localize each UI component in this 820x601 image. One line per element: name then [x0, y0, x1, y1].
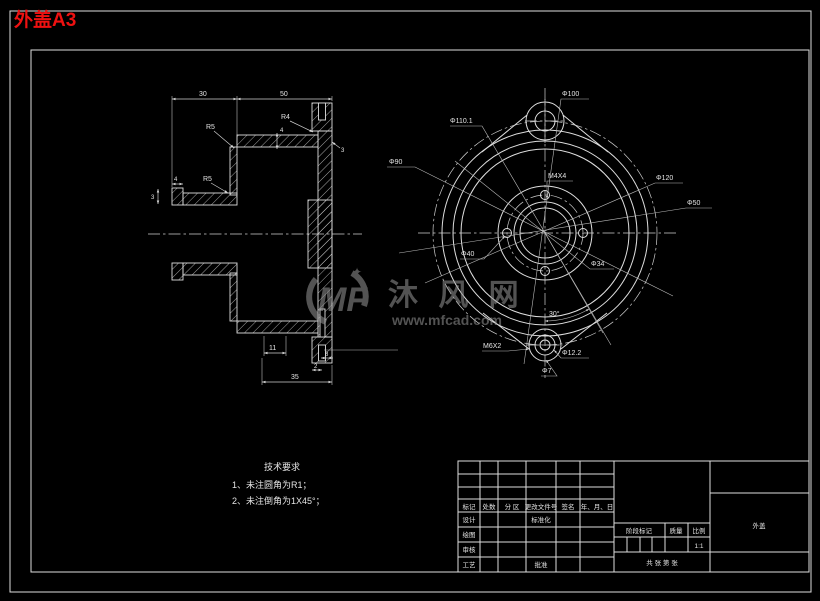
tb-scale-value: 1:1: [694, 543, 703, 550]
tb-col-date: 年、月、日: [581, 502, 614, 511]
dim-11: 11: [269, 345, 276, 352]
cad-sheet: 外盖A3 30: [0, 0, 820, 601]
label-a30: 30°: [549, 310, 560, 318]
watermark-url: www.mfcad.com: [391, 312, 502, 328]
label-d40: Φ40: [461, 251, 474, 258]
label-d7: Φ7: [542, 368, 552, 375]
dim-3b: 3: [341, 148, 345, 154]
label-d110: Φ110.1: [450, 118, 473, 125]
label-d122: Φ12.2: [562, 350, 581, 357]
tb-row-design: 设计: [463, 515, 477, 524]
tb-row-draw: 绘图: [463, 530, 476, 539]
tb-col-mark: 标记: [463, 502, 477, 511]
tb-stage-mark: 阶段标记: [626, 526, 653, 535]
dim-r5a: R5: [206, 124, 215, 131]
label-d50: Φ50: [687, 200, 700, 207]
watermark-sparkle-icon: ✦: [352, 265, 362, 279]
tech-req-item-2: 2、未注倒角为1X45°；: [232, 495, 325, 506]
label-m4: M4X4: [548, 173, 566, 180]
tech-req-item-1: 1、未注圆角为R1；: [232, 479, 312, 490]
front-view-labels: Φ90 Φ110.1 Φ100 Φ120 Φ50 Φ34 Φ40 M4X4 30…: [387, 91, 712, 376]
section-view: 30 50 R4 R5 R5 4 3 4 3 11 35 8: [148, 91, 398, 385]
watermark-brand: 沐 风 网: [388, 279, 525, 312]
dim-30: 30: [199, 91, 207, 98]
dim-r5b: R5: [203, 176, 212, 183]
dim-35: 35: [291, 374, 299, 381]
tb-mass: 质量: [670, 526, 684, 535]
watermark-logo: MF: [318, 281, 368, 319]
label-m6: M6X2: [483, 343, 501, 350]
label-d34: Φ34: [591, 261, 604, 268]
dim-2: 2: [314, 364, 318, 370]
dim-50: 50: [280, 91, 288, 98]
tb-part-name: 外盖: [753, 521, 767, 530]
tech-req-title: 技术要求: [264, 461, 300, 472]
tech-requirements: 技术要求 1、未注圆角为R1； 2、未注倒角为1X45°；: [232, 461, 325, 506]
label-d120: Φ120: [656, 175, 673, 182]
tb-row-check: 审核: [463, 545, 477, 554]
title-block: 标记 处数 分 区 更改文件号 签名 年、月、日 设计 标准化 绘图 审核 工艺…: [458, 461, 809, 572]
drawing-canvas: 外盖A3 30: [0, 0, 820, 601]
tb-scale-label: 比例: [693, 526, 706, 535]
front-view: Φ90 Φ110.1 Φ100 Φ120 Φ50 Φ34 Φ40 M4X4 30…: [387, 88, 712, 378]
watermark: MF ✦ 沐 风 网 www.mfcad.com: [309, 265, 525, 328]
dim-r4: R4: [281, 114, 290, 121]
label-d100: Φ100: [562, 91, 579, 98]
tb-standardization: 标准化: [531, 515, 551, 524]
label-d90: Φ90: [389, 159, 402, 166]
tb-col-count: 处数: [483, 502, 497, 511]
tb-sheet-info: 共 张 第 张: [646, 558, 678, 567]
page-title: 外盖A3: [14, 8, 76, 31]
tb-col-zone: 分 区: [505, 502, 520, 511]
tb-col-sign: 签名: [562, 502, 575, 511]
tb-col-docno: 更改文件号: [525, 502, 558, 511]
tb-row-process: 工艺: [463, 561, 477, 569]
dim-4: 4: [174, 177, 178, 183]
tb-approve: 批准: [535, 560, 549, 569]
dim-4b: 4: [280, 128, 284, 134]
dim-3: 3: [151, 195, 155, 201]
